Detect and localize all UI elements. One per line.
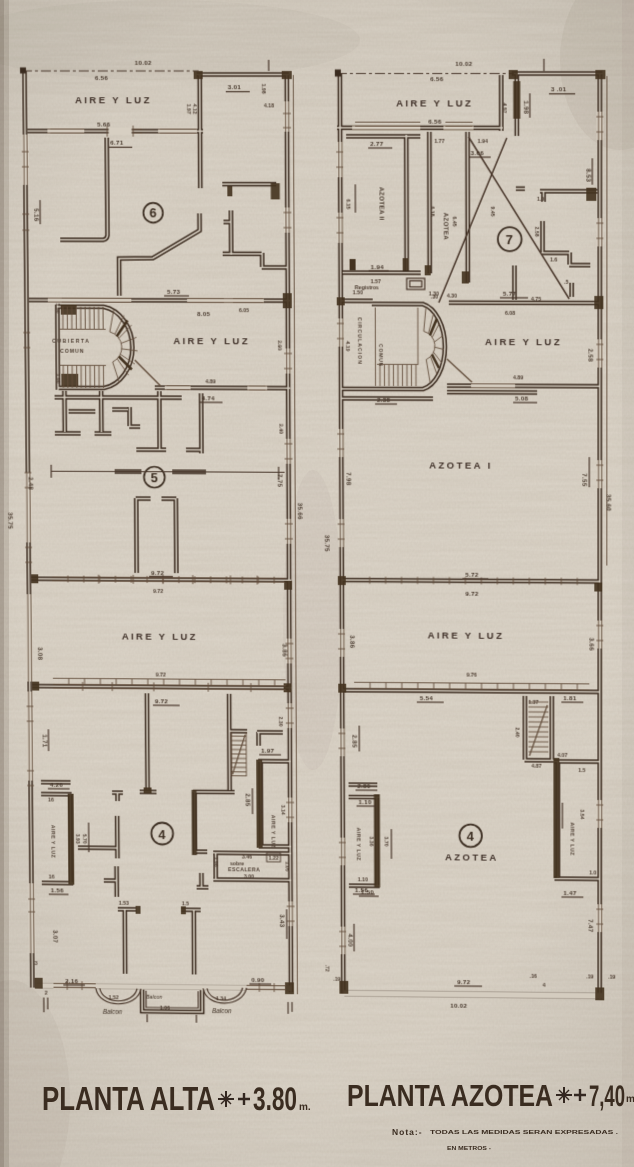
svg-text:PLANTA AZOTEA: PLANTA AZOTEA (347, 1078, 553, 1113)
svg-text:7,40: 7,40 (589, 1080, 625, 1113)
svg-text:Nota:-: Nota:- (392, 1127, 423, 1137)
svg-text:m.: m. (299, 1102, 311, 1113)
svg-text:m: m (626, 1094, 634, 1105)
svg-text:PLANTA ALTA: PLANTA ALTA (42, 1080, 215, 1117)
svg-text:TODAS LAS MEDIDAS SERAN EXPRES: TODAS LAS MEDIDAS SERAN EXPRESADAS . (430, 1130, 619, 1136)
svg-text:EN METROS -: EN METROS - (447, 1146, 491, 1152)
svg-text:3.80: 3.80 (253, 1081, 297, 1117)
